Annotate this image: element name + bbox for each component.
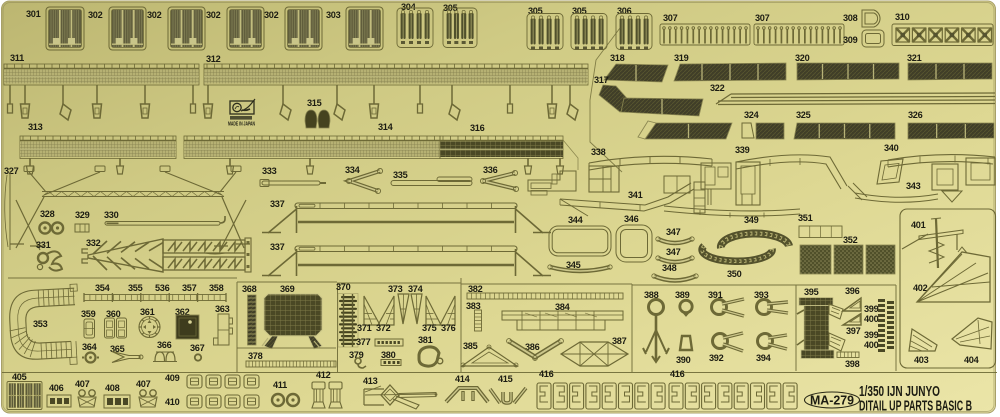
svg-text:326: 326 (908, 110, 923, 120)
svg-text:312: 312 (206, 54, 221, 64)
svg-text:377: 377 (356, 337, 371, 347)
svg-text:399: 399 (864, 304, 879, 314)
svg-text:328: 328 (40, 209, 55, 219)
svg-text:380: 380 (381, 350, 396, 360)
svg-text:399: 399 (864, 330, 879, 340)
svg-text:DITAIL UP PARTS BASIC B: DITAIL UP PARTS BASIC B (859, 399, 972, 415)
svg-text:336: 336 (483, 165, 498, 175)
svg-text:413: 413 (363, 376, 378, 386)
svg-text:319: 319 (674, 53, 689, 63)
svg-text:322: 322 (710, 83, 725, 93)
svg-text:415: 415 (498, 374, 513, 384)
svg-text:335: 335 (393, 170, 408, 180)
svg-text:406: 406 (49, 383, 64, 393)
svg-text:302: 302 (147, 10, 162, 20)
svg-text:307: 307 (755, 13, 770, 23)
svg-text:359: 359 (81, 309, 96, 319)
svg-text:305: 305 (572, 6, 587, 16)
svg-text:324: 324 (744, 110, 760, 120)
svg-text:305: 305 (528, 6, 543, 16)
svg-text:369: 369 (280, 284, 295, 294)
svg-text:313: 313 (28, 122, 43, 132)
svg-text:331: 331 (36, 240, 51, 250)
svg-text:366: 366 (157, 340, 172, 350)
svg-text:349: 349 (744, 215, 759, 225)
svg-text:310: 310 (895, 12, 910, 22)
svg-text:337: 337 (270, 199, 285, 209)
svg-text:339: 339 (735, 145, 750, 155)
svg-text:394: 394 (756, 353, 772, 363)
svg-text:395: 395 (804, 287, 819, 297)
svg-text:411: 411 (273, 380, 287, 390)
svg-text:396: 396 (845, 286, 860, 296)
svg-text:333: 333 (262, 166, 277, 176)
svg-text:325: 325 (796, 110, 811, 120)
svg-text:348: 348 (662, 263, 677, 273)
svg-text:347: 347 (666, 227, 681, 237)
svg-text:343: 343 (906, 181, 921, 191)
svg-text:347: 347 (666, 247, 681, 257)
svg-text:385: 385 (463, 341, 478, 351)
svg-text:327: 327 (4, 166, 19, 176)
svg-text:321: 321 (907, 53, 922, 63)
svg-text:308: 308 (843, 13, 858, 23)
svg-text:316: 316 (470, 123, 485, 133)
svg-text:344: 344 (568, 215, 584, 225)
svg-text:353: 353 (33, 319, 48, 329)
svg-text:414: 414 (455, 374, 471, 384)
svg-text:302: 302 (264, 10, 279, 20)
svg-text:389: 389 (675, 290, 690, 300)
svg-text:354: 354 (95, 283, 111, 293)
svg-text:374: 374 (408, 284, 424, 294)
svg-text:367: 367 (190, 343, 205, 353)
svg-text:358: 358 (209, 283, 224, 293)
svg-text:536: 536 (155, 283, 170, 293)
svg-text:409: 409 (165, 373, 180, 383)
svg-text:416: 416 (670, 369, 685, 379)
svg-text:306: 306 (617, 6, 632, 16)
svg-text:372: 372 (376, 323, 391, 333)
svg-text:341: 341 (628, 190, 643, 200)
svg-text:329: 329 (75, 210, 90, 220)
svg-text:390: 390 (676, 355, 691, 365)
svg-text:371: 371 (357, 323, 372, 333)
svg-text:355: 355 (128, 283, 143, 293)
svg-text:346: 346 (624, 214, 639, 224)
svg-text:340: 340 (884, 143, 899, 153)
svg-text:315: 315 (307, 98, 322, 108)
svg-text:MADE IN JAPAN: MADE IN JAPAN (228, 122, 255, 128)
svg-text:302: 302 (206, 10, 221, 20)
svg-text:350: 350 (727, 269, 742, 279)
svg-text:302: 302 (88, 10, 103, 20)
svg-text:334: 334 (345, 165, 361, 175)
svg-text:MA-279: MA-279 (810, 394, 854, 408)
svg-text:387: 387 (612, 336, 627, 346)
svg-text:403: 403 (914, 355, 929, 365)
svg-text:317: 317 (594, 75, 609, 85)
svg-text:401: 401 (911, 220, 926, 230)
svg-text:407: 407 (136, 379, 151, 389)
svg-text:311: 311 (10, 53, 24, 63)
svg-text:361: 361 (140, 307, 155, 317)
svg-text:407: 407 (75, 379, 90, 389)
svg-text:404: 404 (964, 355, 980, 365)
svg-text:412: 412 (316, 370, 331, 380)
svg-text:352: 352 (843, 235, 858, 245)
svg-text:416: 416 (539, 369, 554, 379)
svg-text:408: 408 (105, 383, 120, 393)
svg-text:400: 400 (864, 340, 879, 350)
svg-text:337: 337 (270, 242, 285, 252)
svg-text:301: 301 (26, 9, 41, 19)
svg-text:363: 363 (215, 304, 230, 314)
svg-text:309: 309 (843, 35, 858, 45)
svg-text:405: 405 (12, 372, 27, 382)
svg-text:318: 318 (610, 53, 625, 63)
svg-text:303: 303 (326, 10, 341, 20)
svg-text:410: 410 (165, 397, 180, 407)
svg-text:357: 357 (182, 283, 197, 293)
svg-text:398: 398 (845, 359, 860, 369)
svg-text:314: 314 (378, 122, 394, 132)
svg-text:373: 373 (388, 284, 403, 294)
svg-text:320: 320 (795, 53, 810, 63)
svg-text:330: 330 (104, 210, 119, 220)
svg-text:351: 351 (798, 213, 813, 223)
svg-text:378: 378 (248, 351, 263, 361)
svg-text:307: 307 (663, 13, 678, 23)
svg-text:397: 397 (846, 326, 861, 336)
svg-text:375: 375 (422, 323, 437, 333)
svg-text:400: 400 (864, 314, 879, 324)
svg-text:368: 368 (242, 284, 257, 294)
svg-text:364: 364 (82, 342, 98, 352)
svg-text:381: 381 (418, 335, 433, 345)
svg-text:376: 376 (441, 323, 456, 333)
svg-text:370: 370 (336, 282, 351, 292)
svg-text:338: 338 (591, 147, 606, 157)
svg-text:332: 332 (86, 238, 101, 248)
svg-text:392: 392 (709, 353, 724, 363)
